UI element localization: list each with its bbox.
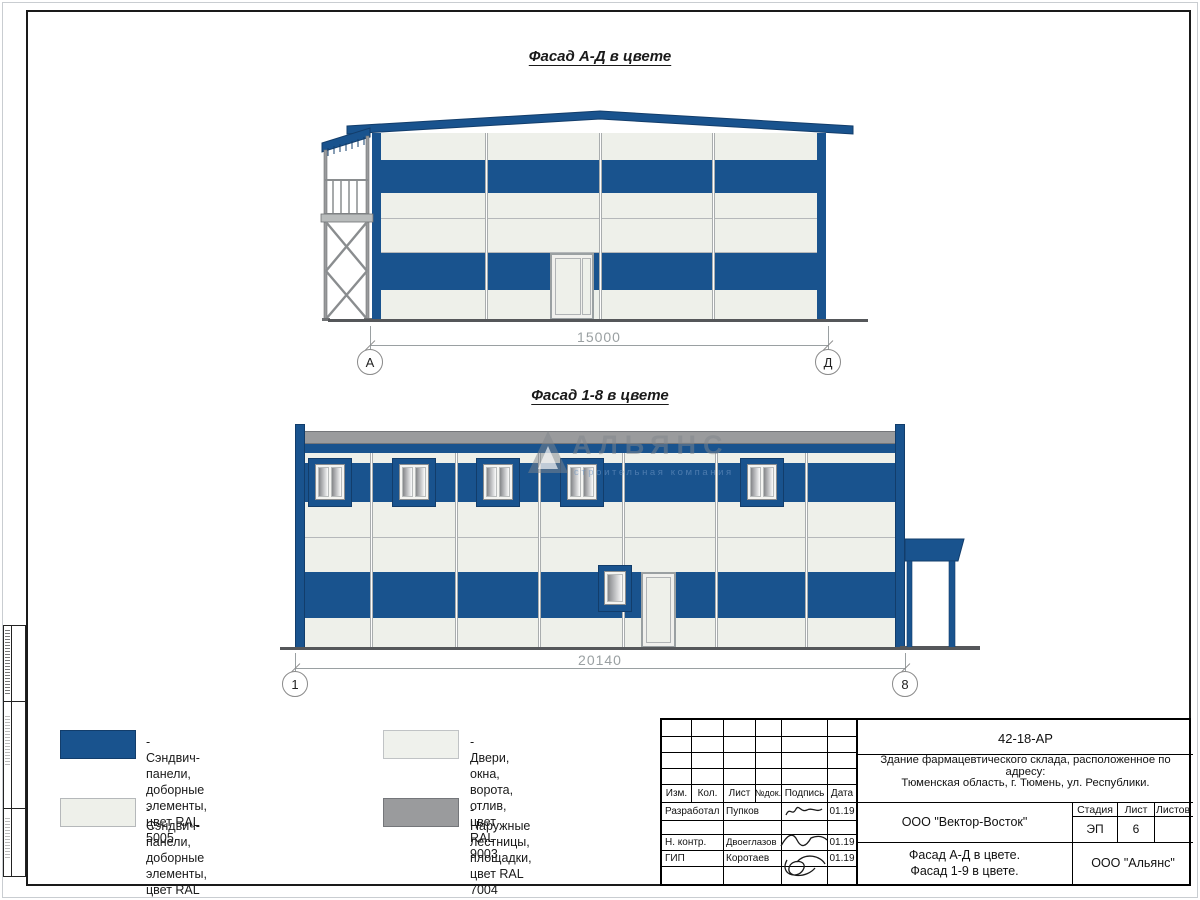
tb-sheet-title-line2: Фасад 1-9 в цвете. bbox=[858, 863, 1071, 879]
window bbox=[308, 458, 352, 507]
facade-ad-building bbox=[372, 133, 826, 320]
tb-doc-code: 42-18-АР bbox=[858, 724, 1193, 752]
window bbox=[392, 458, 436, 507]
tb-date: 01.19 bbox=[828, 834, 856, 850]
tb-description-line1: Здание фармацевтического склада, располо… bbox=[860, 758, 1191, 774]
tb-col-podpis: Подпись bbox=[782, 784, 827, 802]
margin-table-vline bbox=[11, 626, 12, 876]
dimension-line bbox=[295, 668, 906, 669]
side-canopy bbox=[900, 532, 985, 652]
legend-label-line: элементы, цвет RAL 9003 bbox=[146, 866, 207, 900]
panel-divider bbox=[715, 453, 718, 648]
panel-divider bbox=[599, 133, 602, 320]
tb-name: Коротаев bbox=[726, 850, 780, 866]
panel-divider bbox=[805, 453, 808, 648]
dimension-line bbox=[370, 345, 829, 346]
axis-marker-8: 8 bbox=[892, 671, 918, 697]
tb-date: 01.19 bbox=[828, 850, 856, 866]
tb-org: ООО "Альянс" bbox=[1073, 848, 1193, 878]
tb-col-izm: Изм. bbox=[662, 784, 691, 802]
tb-date: 01.19 bbox=[828, 802, 856, 820]
tb-stage-label: Стадия bbox=[1073, 803, 1117, 816]
ground-line bbox=[328, 319, 868, 322]
legend-label: - Наружные лестницы, площадки, цвет RAL … bbox=[470, 802, 532, 898]
entrance-door bbox=[550, 253, 594, 320]
entrance-door bbox=[641, 572, 676, 648]
corner-column bbox=[295, 424, 305, 648]
tb-role: Разработал bbox=[665, 802, 723, 820]
window bbox=[740, 458, 784, 507]
external-stair bbox=[320, 122, 376, 326]
panel-divider bbox=[485, 133, 488, 320]
margin-stamp-table bbox=[3, 625, 26, 877]
facade-ad-drawing: 15000 А Д bbox=[320, 104, 876, 382]
legend-swatch-ral9003-panels bbox=[60, 798, 136, 827]
watermark-logo-icon bbox=[528, 431, 568, 473]
facade-18-drawing: АЛЬЯНС строительная компания 20140 1 8 bbox=[280, 384, 990, 714]
panel-divider bbox=[622, 453, 625, 648]
window bbox=[598, 565, 632, 612]
tb-sheets-label: Листов bbox=[1155, 803, 1191, 816]
dimension-value: 20140 bbox=[500, 652, 700, 668]
facade-ad-title: Фасад А-Д в цвете bbox=[450, 48, 750, 65]
panel-divider bbox=[370, 453, 373, 648]
tb-col-list: Лист bbox=[724, 784, 755, 802]
tb-col-ndok: №док. bbox=[755, 784, 781, 802]
watermark-name: АЛЬЯНС bbox=[572, 430, 730, 461]
signature-icon bbox=[775, 826, 831, 882]
tb-sheet-title-line1: Фасад А-Д в цвете. bbox=[858, 847, 1071, 863]
title-block: Изм. Кол. Лист №док. Подпись Дата Разраб… bbox=[660, 718, 1191, 886]
panel-divider bbox=[538, 453, 541, 648]
margin-vertical-text bbox=[5, 818, 10, 858]
legend-label-line: - Наружные лестницы, bbox=[470, 802, 532, 850]
tb-col-kol: Кол. bbox=[692, 784, 723, 802]
legend-label-line: - Сэндвич-панели, доборные bbox=[146, 802, 207, 866]
tb-stage-value: ЭП bbox=[1073, 818, 1117, 840]
tb-description-line2: Тюменская область, г. Тюмень, ул. Респуб… bbox=[860, 775, 1191, 791]
legend-swatch-ral9003-doors bbox=[383, 730, 459, 759]
legend-label-line: - Сэндвич-панели, доборные bbox=[146, 734, 207, 798]
tb-sheets-value bbox=[1155, 818, 1191, 840]
ground-line bbox=[280, 647, 980, 650]
tb-company: ООО "Вектор-Восток" bbox=[858, 808, 1071, 836]
legend-swatch-ral7004 bbox=[383, 798, 459, 827]
tb-role: Н. контр. bbox=[665, 834, 723, 850]
margin-vertical-text bbox=[5, 630, 10, 696]
drawing-sheet: Фасад А-Д в цвете bbox=[0, 0, 1200, 900]
margin-table-hline bbox=[4, 808, 25, 809]
tb-name: Двоеглазов bbox=[726, 834, 780, 850]
panel-joint-line bbox=[295, 537, 905, 538]
window bbox=[476, 458, 520, 507]
dimension-value: 15000 bbox=[499, 329, 699, 345]
axis-marker-1: 1 bbox=[282, 671, 308, 697]
legend-label: - Сэндвич-панели, доборные элементы, цве… bbox=[146, 802, 207, 900]
axis-marker-d: Д bbox=[815, 349, 841, 375]
margin-vertical-text bbox=[5, 716, 10, 766]
tb-sheet-value: 6 bbox=[1118, 818, 1154, 840]
watermark-tagline: строительная компания bbox=[574, 467, 734, 478]
tb-role: ГИП bbox=[665, 850, 723, 866]
door-leaf bbox=[646, 577, 671, 643]
tb-name: Пупков bbox=[726, 802, 780, 820]
door-leaf bbox=[555, 258, 581, 315]
legend-swatch-ral5005 bbox=[60, 730, 136, 759]
margin-table-hline bbox=[4, 701, 25, 702]
door-sidelight bbox=[582, 258, 591, 315]
signature-icon bbox=[783, 804, 825, 820]
tb-col-data: Дата bbox=[828, 784, 856, 802]
corner-column bbox=[817, 133, 826, 320]
axis-marker-a: А bbox=[357, 349, 383, 375]
panel-divider bbox=[455, 453, 458, 648]
panel-divider bbox=[712, 133, 715, 320]
tb-sheet-label: Лист bbox=[1118, 803, 1154, 816]
legend-label-line: площадки, цвет RAL 7004 bbox=[470, 850, 532, 898]
